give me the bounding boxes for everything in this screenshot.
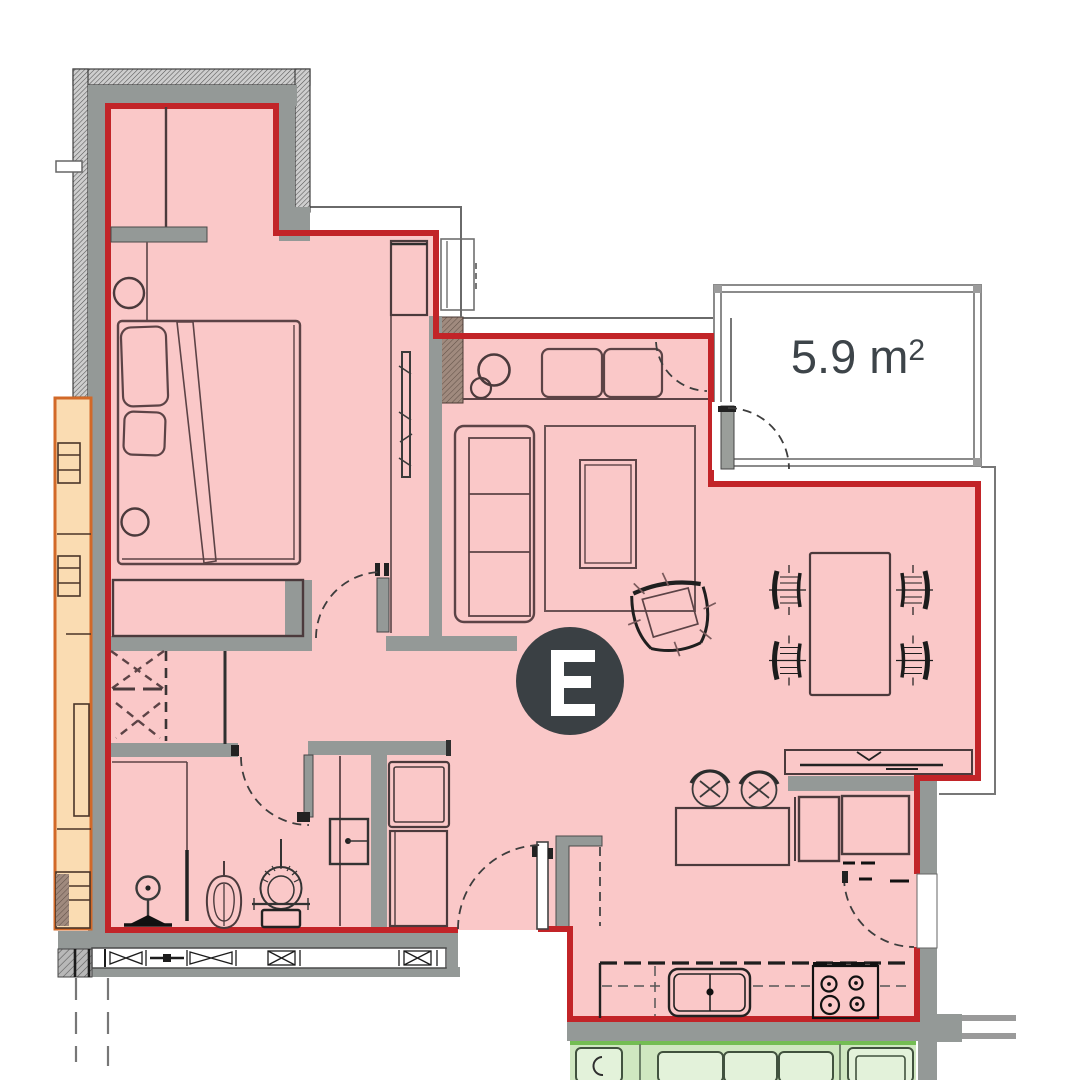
svg-text:5.9 m2: 5.9 m2 xyxy=(791,330,925,383)
